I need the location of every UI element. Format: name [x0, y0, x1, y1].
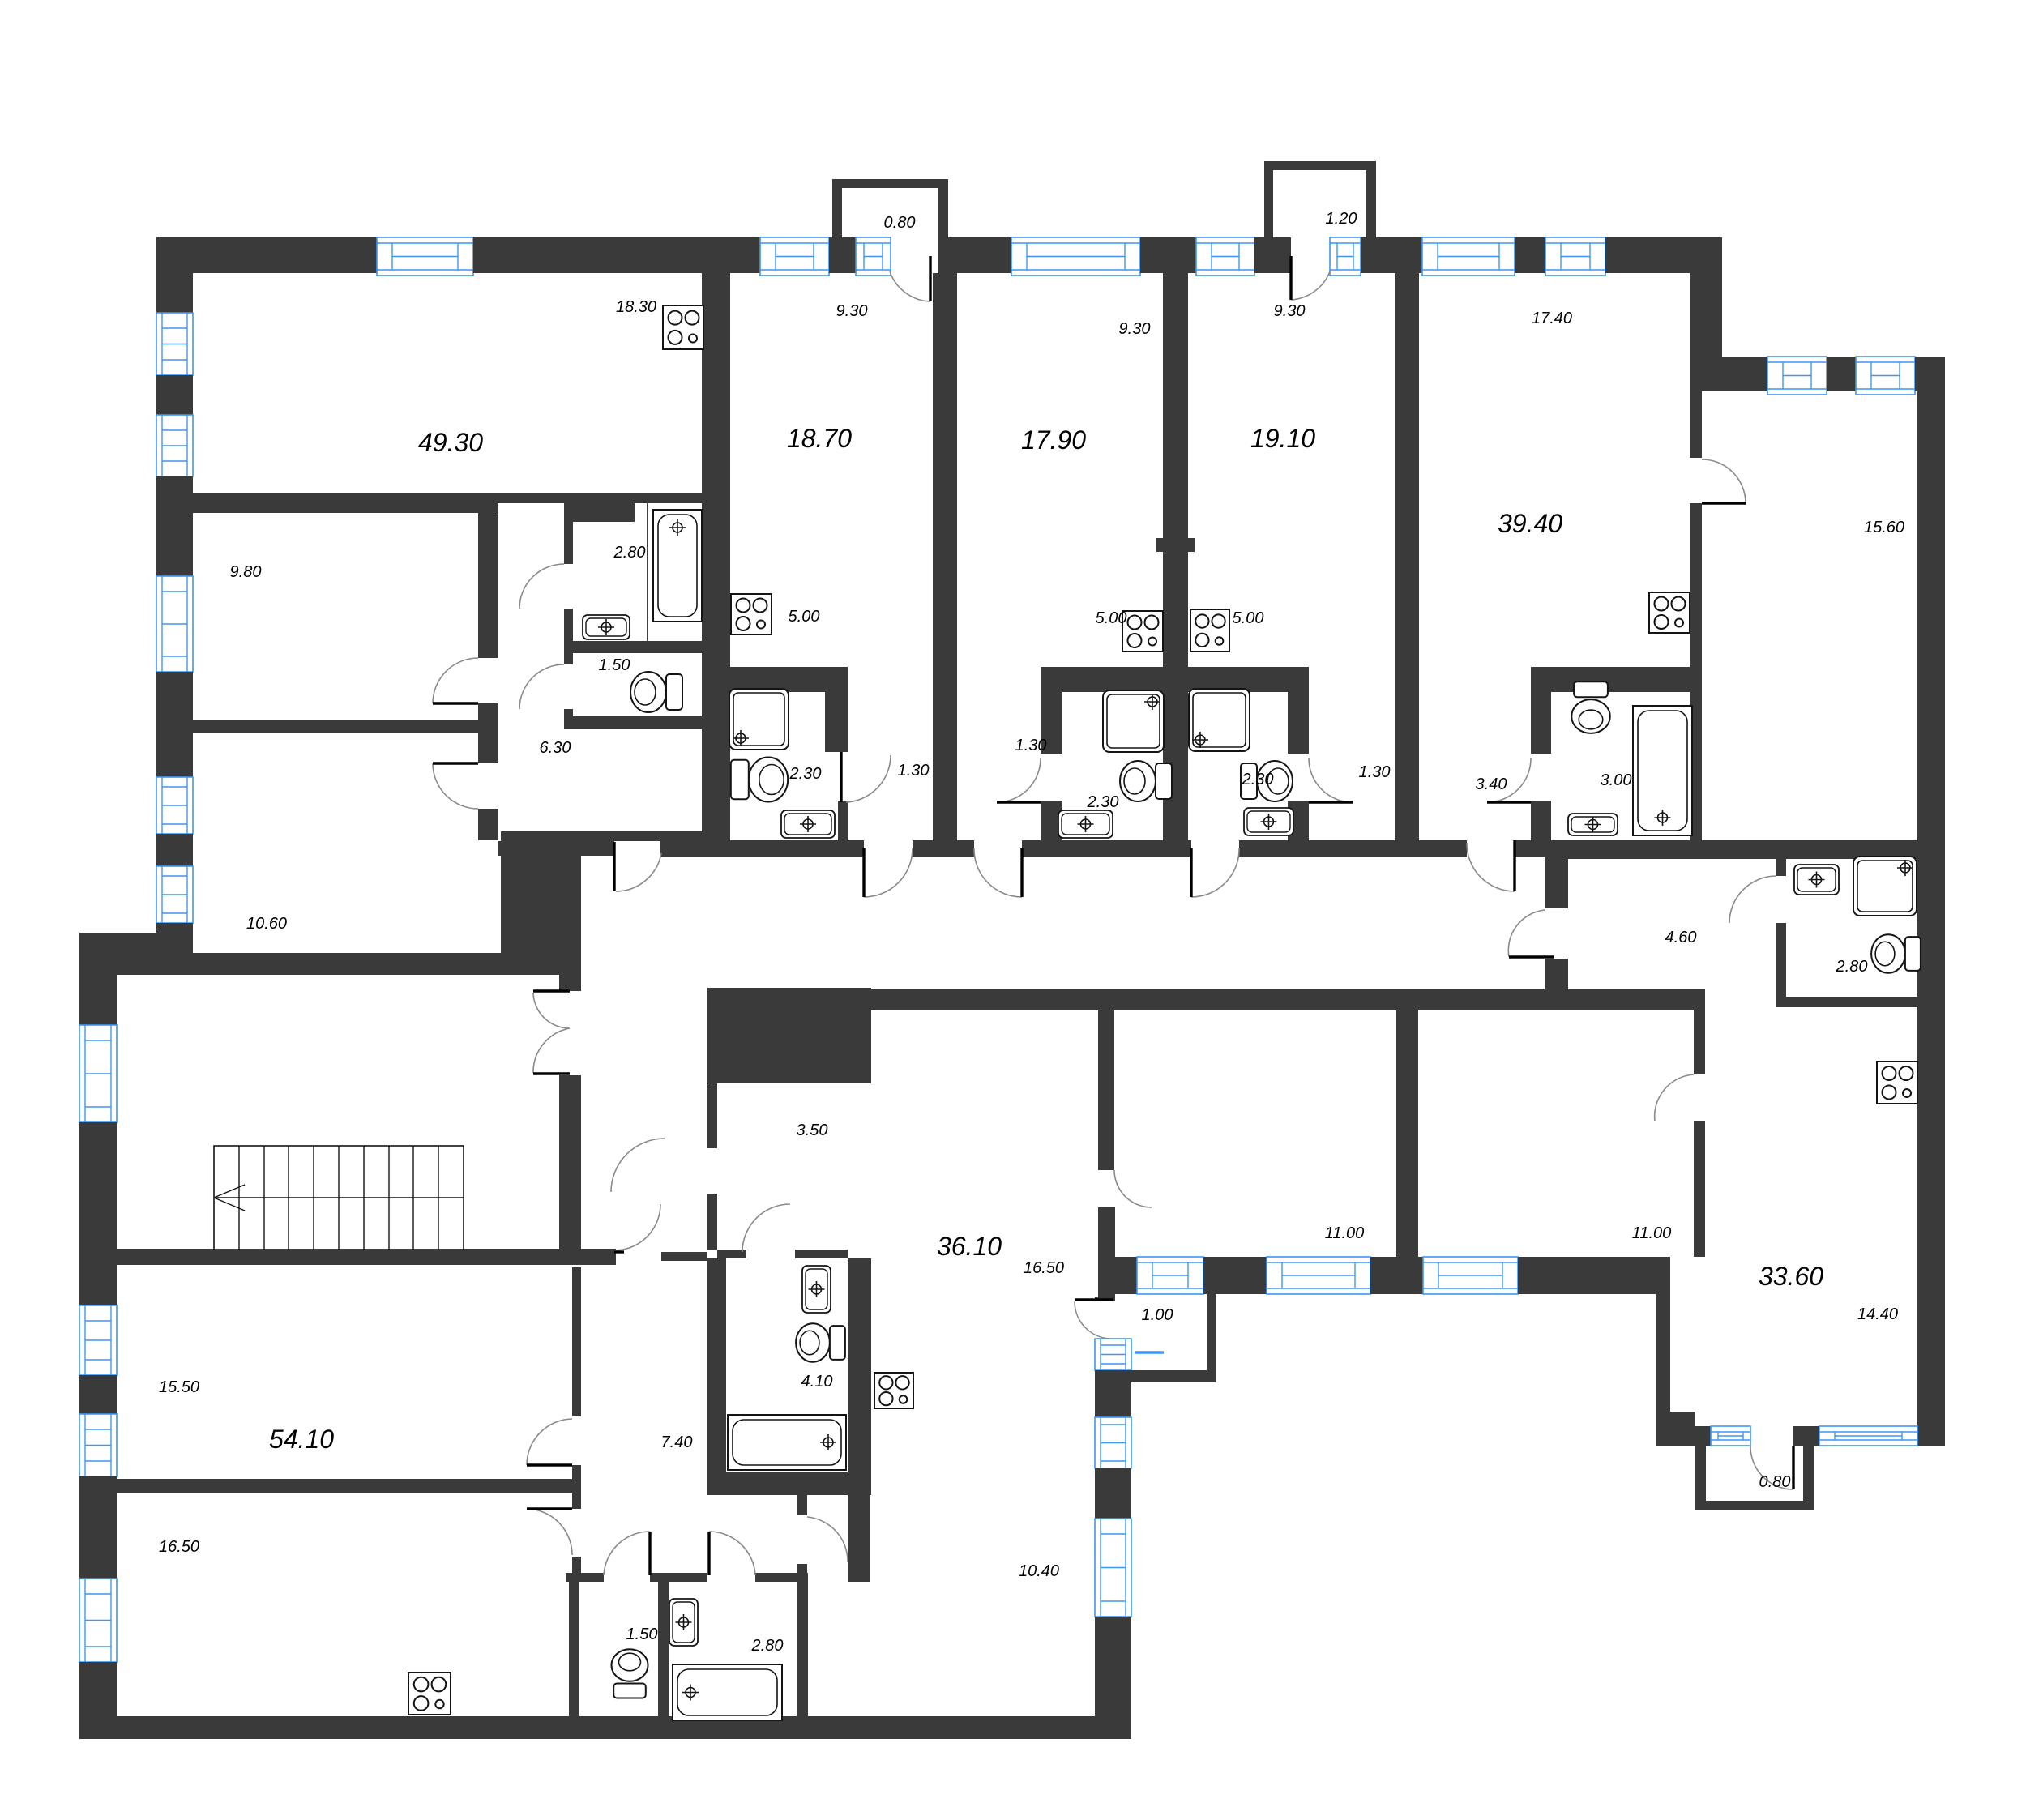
svg-text:6.30: 6.30: [540, 739, 571, 757]
svg-text:18.70: 18.70: [787, 424, 852, 453]
svg-text:18.30: 18.30: [616, 298, 656, 316]
svg-text:5.00: 5.00: [1096, 609, 1127, 627]
svg-text:1.30: 1.30: [898, 762, 930, 780]
svg-text:19.10: 19.10: [1250, 424, 1315, 453]
svg-text:2.30: 2.30: [789, 765, 822, 783]
svg-text:0.80: 0.80: [1759, 1473, 1791, 1491]
svg-text:49.30: 49.30: [418, 428, 483, 457]
svg-text:9.30: 9.30: [836, 302, 868, 320]
svg-text:3.40: 3.40: [1476, 775, 1507, 793]
svg-text:17.90: 17.90: [1021, 425, 1086, 455]
svg-text:11.00: 11.00: [1325, 1224, 1365, 1242]
svg-text:39.40: 39.40: [1498, 509, 1562, 538]
svg-text:1.20: 1.20: [1326, 210, 1357, 228]
svg-text:14.40: 14.40: [1857, 1305, 1898, 1323]
svg-text:1.50: 1.50: [599, 656, 630, 674]
svg-text:9.30: 9.30: [1274, 302, 1306, 320]
svg-text:3.00: 3.00: [1601, 771, 1632, 789]
svg-text:2.80: 2.80: [613, 544, 646, 562]
svg-text:5.00: 5.00: [1233, 609, 1264, 627]
svg-text:4.60: 4.60: [1665, 929, 1697, 946]
svg-text:36.10: 36.10: [937, 1232, 1002, 1261]
svg-text:33.60: 33.60: [1759, 1262, 1823, 1291]
svg-text:15.50: 15.50: [159, 1378, 199, 1396]
svg-text:1.50: 1.50: [626, 1626, 658, 1643]
svg-text:11.00: 11.00: [1632, 1224, 1672, 1242]
svg-text:2.80: 2.80: [751, 1637, 784, 1655]
svg-text:4.10: 4.10: [801, 1373, 833, 1391]
svg-text:17.40: 17.40: [1532, 310, 1572, 327]
svg-text:9.80: 9.80: [230, 563, 262, 581]
svg-text:7.40: 7.40: [661, 1433, 693, 1451]
svg-text:15.60: 15.60: [1864, 519, 1904, 536]
svg-text:16.50: 16.50: [159, 1538, 199, 1556]
svg-text:2.30: 2.30: [1087, 793, 1119, 811]
svg-text:10.40: 10.40: [1019, 1562, 1059, 1580]
svg-text:1.30: 1.30: [1359, 763, 1391, 781]
svg-text:9.30: 9.30: [1119, 320, 1151, 338]
svg-text:1.00: 1.00: [1142, 1306, 1173, 1324]
svg-text:2.30: 2.30: [1242, 771, 1274, 788]
svg-text:5.00: 5.00: [789, 608, 820, 626]
svg-text:0.80: 0.80: [884, 214, 916, 232]
svg-text:3.50: 3.50: [797, 1121, 828, 1139]
svg-text:16.50: 16.50: [1024, 1259, 1064, 1277]
svg-text:54.10: 54.10: [269, 1425, 334, 1454]
svg-text:2.80: 2.80: [1836, 958, 1868, 976]
svg-text:10.60: 10.60: [246, 915, 287, 933]
svg-text:1.30: 1.30: [1015, 737, 1047, 754]
